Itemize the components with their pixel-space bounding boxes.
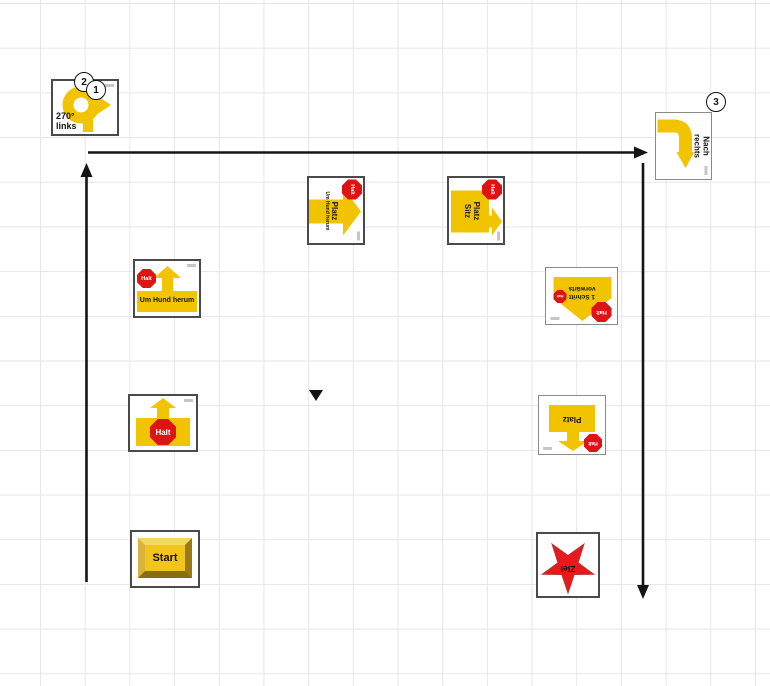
sign-ziel[interactable]: Ziel — [536, 532, 600, 598]
sign-label: Platz Um Hund herum — [323, 178, 339, 243]
arrowhead-right-icon — [634, 147, 648, 159]
ziel-label: Ziel — [538, 564, 598, 574]
sign-nach-rechts[interactable]: Nach rechts — [655, 112, 712, 180]
marker-label: 3 — [713, 97, 719, 108]
marker-label: 1 — [93, 85, 99, 96]
start-label: Start — [152, 552, 177, 564]
station-marker-1[interactable]: 1 — [86, 80, 106, 100]
arrowhead-down-icon — [637, 585, 649, 599]
path-arrow-left-up[interactable] — [81, 163, 93, 582]
sign-halt[interactable]: Halt — [128, 394, 198, 452]
turn-right-arrow-icon — [657, 114, 693, 174]
start-button-tile: Start — [138, 538, 192, 578]
sign-platz-halt[interactable]: Halt Platz — [538, 395, 606, 455]
station-marker-3[interactable]: 3 — [706, 92, 726, 112]
path-arrow-top[interactable] — [88, 147, 648, 159]
sign-halt-platz-um-hund-herum[interactable]: Halt Platz Um Hund herum — [307, 176, 365, 245]
sign-label: Platz Sitz — [463, 178, 481, 243]
direction-triangle-marker[interactable] — [309, 390, 323, 401]
sign-label: Um Hund herum — [135, 297, 199, 304]
halt-octagon: Halt — [137, 269, 156, 288]
course-canvas[interactable]: 270° links 2 1 3 Nach rechts H — [0, 0, 770, 686]
sign-label: Platz — [540, 415, 604, 424]
sign-1-schritt-vorwaerts[interactable]: Halt Halt 1 Schritt vorwärts — [545, 267, 618, 325]
sign-270-label: 270° links — [56, 111, 77, 131]
nach-rechts-label: Nach rechts — [692, 114, 709, 178]
sign-halt-platz-sitz[interactable]: Halt Platz Sitz — [447, 176, 505, 245]
path-arrow-right-down[interactable] — [637, 163, 649, 599]
arrowhead-up-icon — [81, 163, 93, 177]
halt-octagon: Halt — [584, 434, 602, 452]
sign-start[interactable]: Start — [130, 530, 200, 588]
sign-halt-um-hund-herum[interactable]: Halt Um Hund herum — [133, 259, 201, 318]
sign-label: 1 Schritt vorwärts — [547, 285, 616, 300]
